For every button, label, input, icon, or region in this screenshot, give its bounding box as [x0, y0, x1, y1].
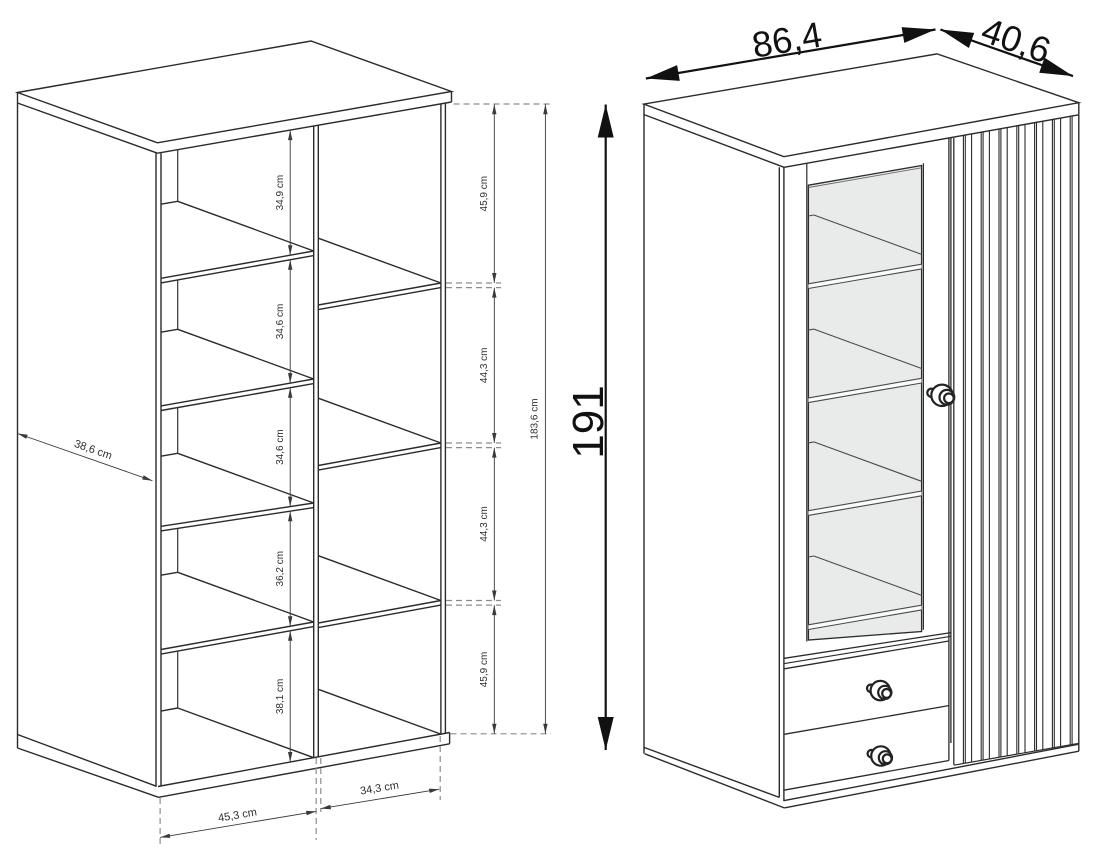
svg-text:44,3 cm: 44,3 cm [479, 506, 490, 542]
svg-text:40,6: 40,6 [976, 9, 1056, 71]
svg-text:34,6 cm: 34,6 cm [275, 429, 286, 465]
svg-text:38,6 cm: 38,6 cm [73, 438, 114, 462]
svg-text:34,9 cm: 34,9 cm [275, 175, 286, 211]
svg-text:191: 191 [564, 385, 613, 458]
svg-text:45,9 cm: 45,9 cm [479, 652, 490, 688]
svg-text:38,1 cm: 38,1 cm [275, 679, 286, 715]
svg-text:34,6 cm: 34,6 cm [275, 304, 286, 340]
svg-text:183,6 cm: 183,6 cm [529, 398, 540, 439]
svg-text:36,2 cm: 36,2 cm [275, 551, 286, 587]
svg-text:34,3 cm: 34,3 cm [359, 779, 400, 797]
svg-text:86,4: 86,4 [749, 14, 825, 66]
svg-text:44,3 cm: 44,3 cm [479, 348, 490, 384]
svg-text:45,9 cm: 45,9 cm [479, 176, 490, 212]
